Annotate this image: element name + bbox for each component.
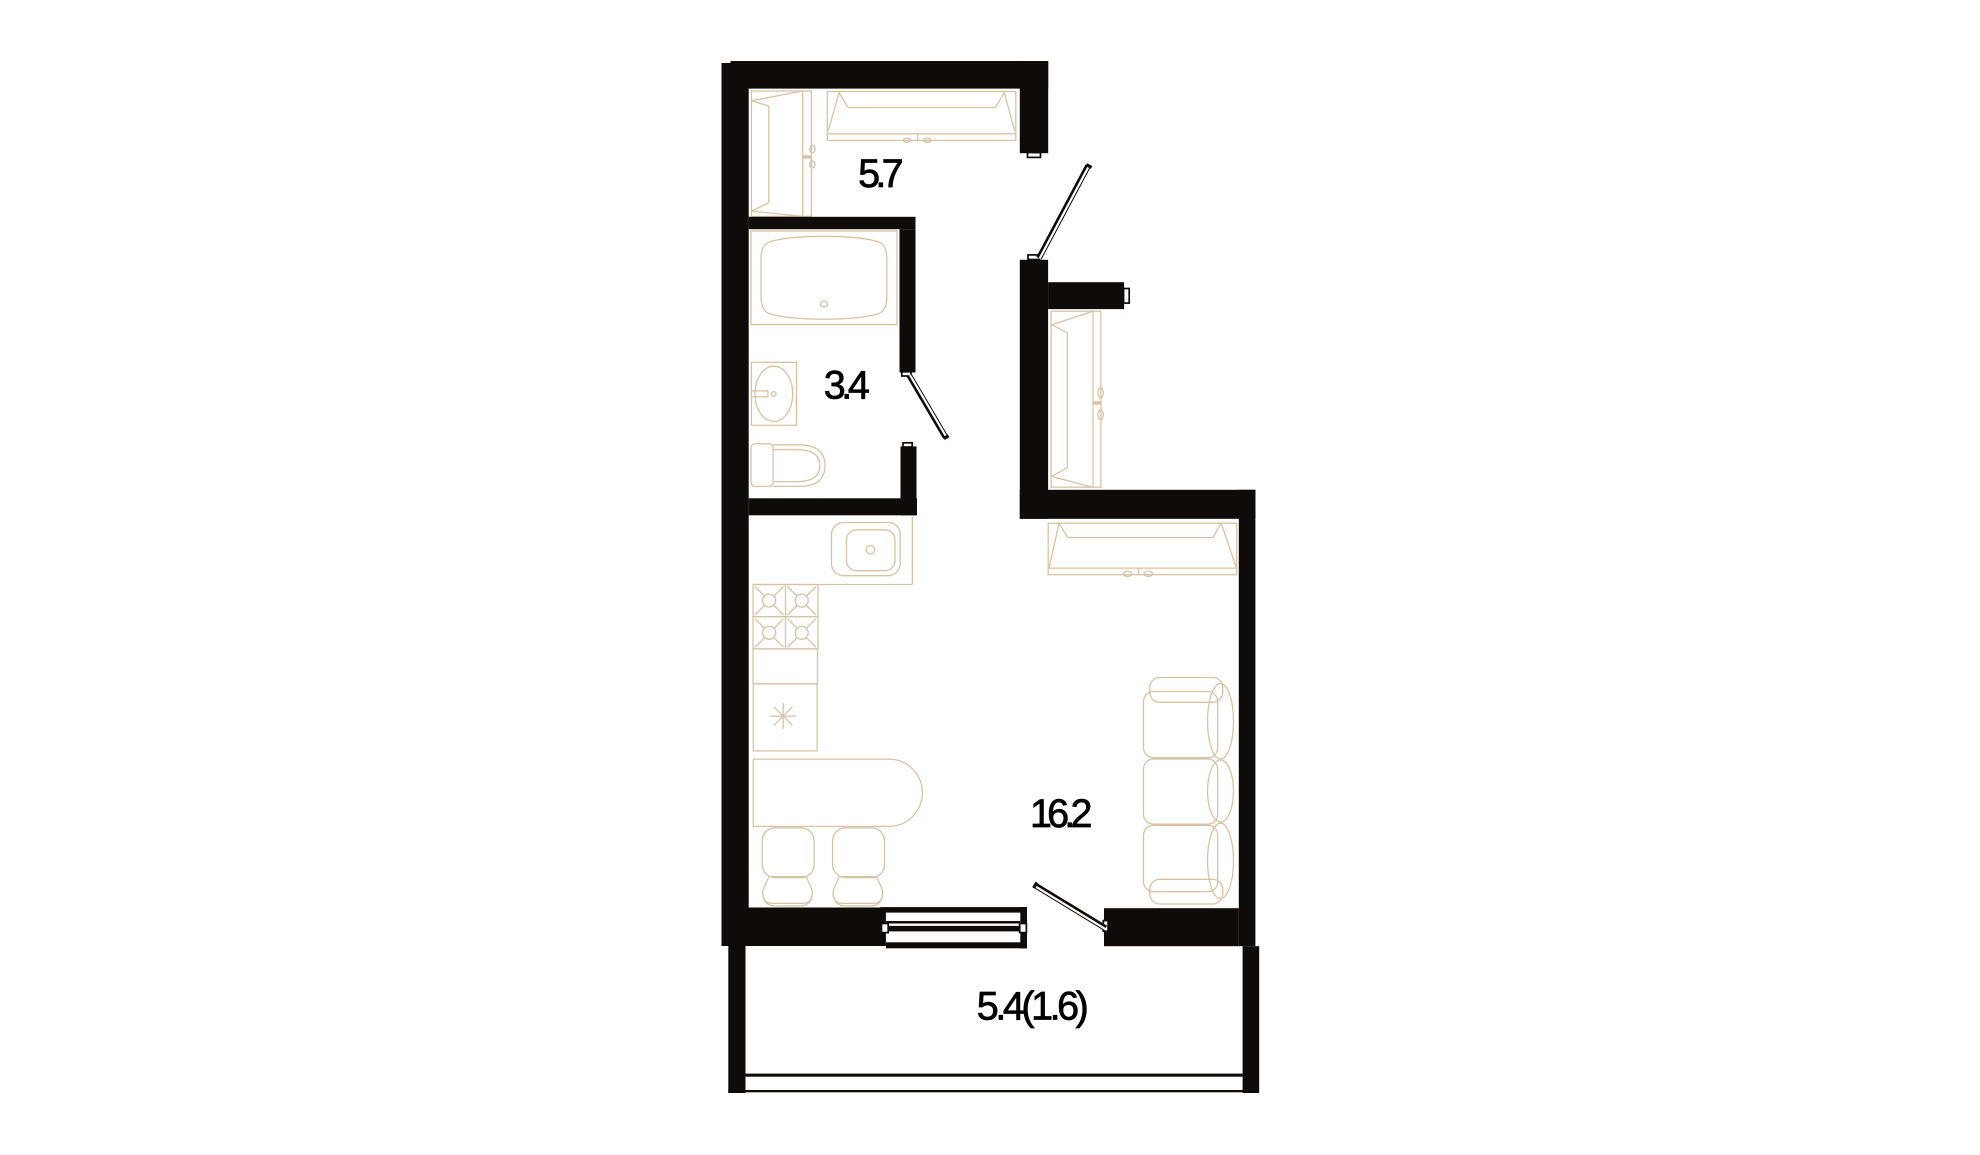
- svg-text:3.4: 3.4: [824, 364, 870, 408]
- svg-text:5.7: 5.7: [858, 152, 904, 196]
- svg-text:5.4(1.6): 5.4(1.6): [977, 985, 1089, 1029]
- svg-text:16.2: 16.2: [1030, 792, 1093, 836]
